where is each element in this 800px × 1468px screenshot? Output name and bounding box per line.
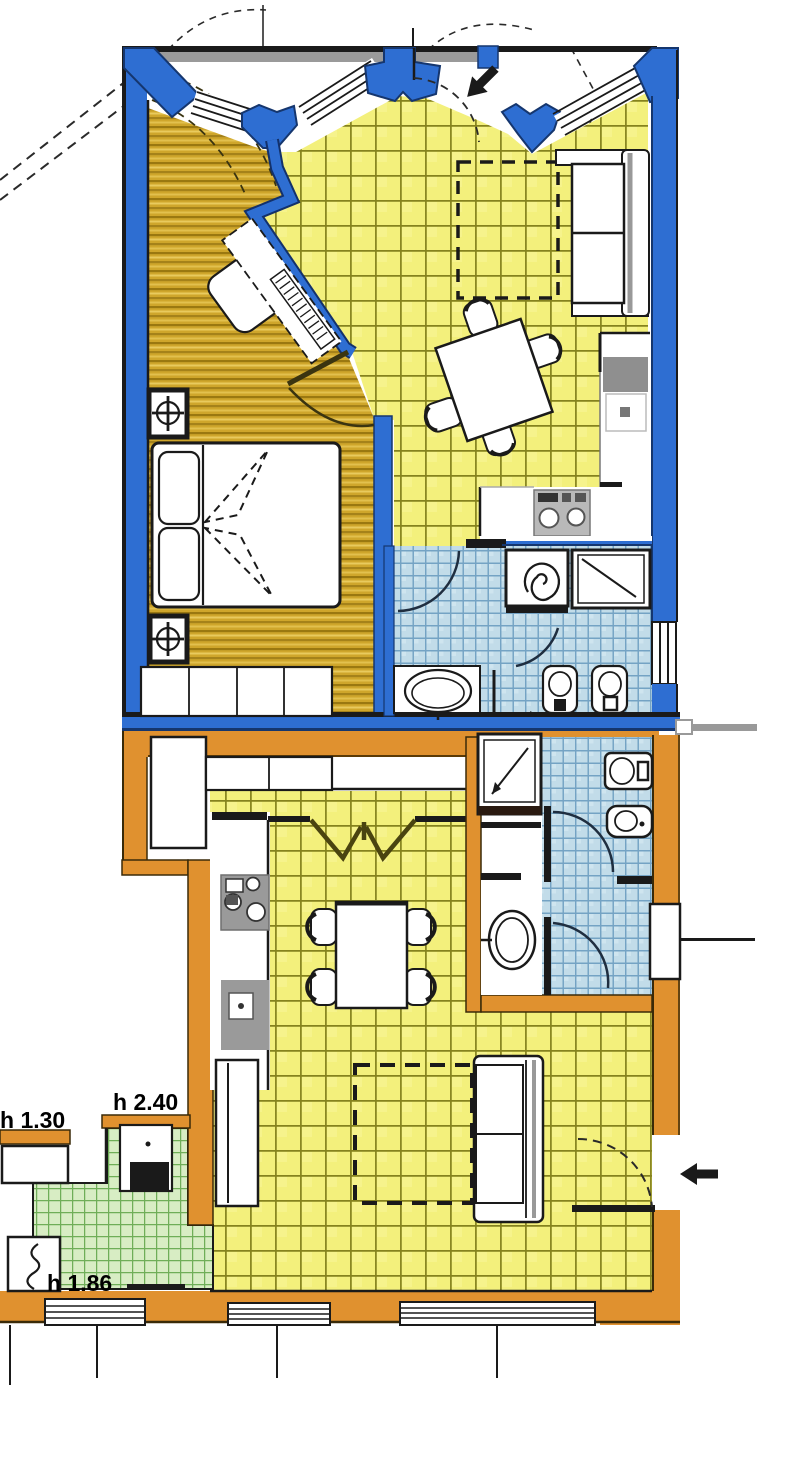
svg-text:h 1.30: h 1.30	[0, 1107, 65, 1133]
svg-text:h 1.86: h 1.86	[47, 1270, 112, 1296]
svg-text:h 2.40: h 2.40	[113, 1089, 178, 1115]
